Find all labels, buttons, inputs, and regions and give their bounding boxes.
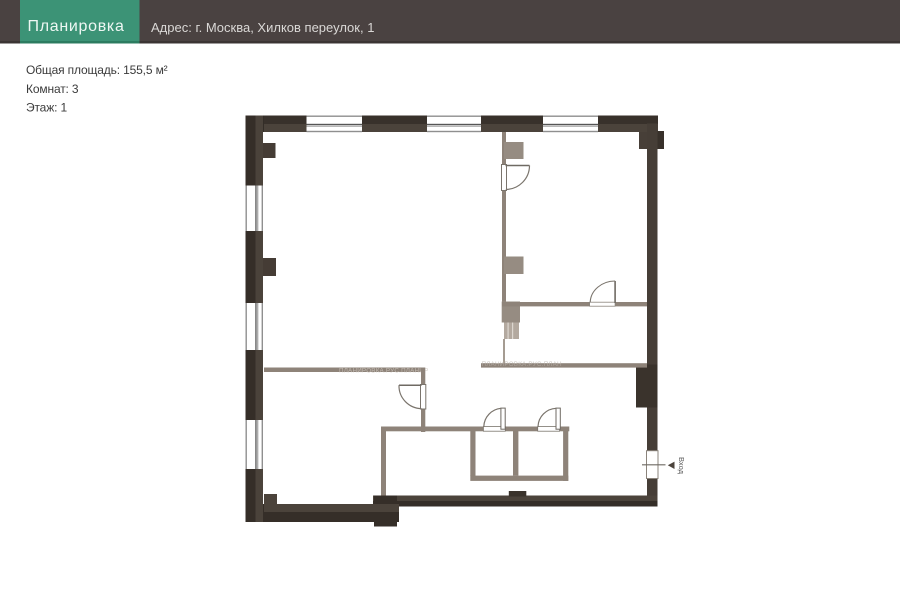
svg-text:ПЛАНИРОВКА.РУС.ПЛАНИР: ПЛАНИРОВКА.РУС.ПЛАНИР xyxy=(339,367,428,374)
svg-text:Адрес: г. Москва, Хилков пере: Адрес: г. Москва, Хилков переулок, 1 xyxy=(151,20,374,35)
svg-text:ПЛАНИРОВКА.РУС.ПЛАН: ПЛАНИРОВКА.РУС.ПЛАН xyxy=(482,361,563,368)
svg-text:Планировка: Планировка xyxy=(28,18,125,35)
svg-text:Этаж: 1: Этаж: 1 xyxy=(26,101,67,115)
svg-text:Общая площадь: 155,5 м²: Общая площадь: 155,5 м² xyxy=(26,63,168,77)
svg-text:Комнат: 3: Комнат: 3 xyxy=(26,82,79,96)
svg-text:Вход: Вход xyxy=(677,457,686,475)
